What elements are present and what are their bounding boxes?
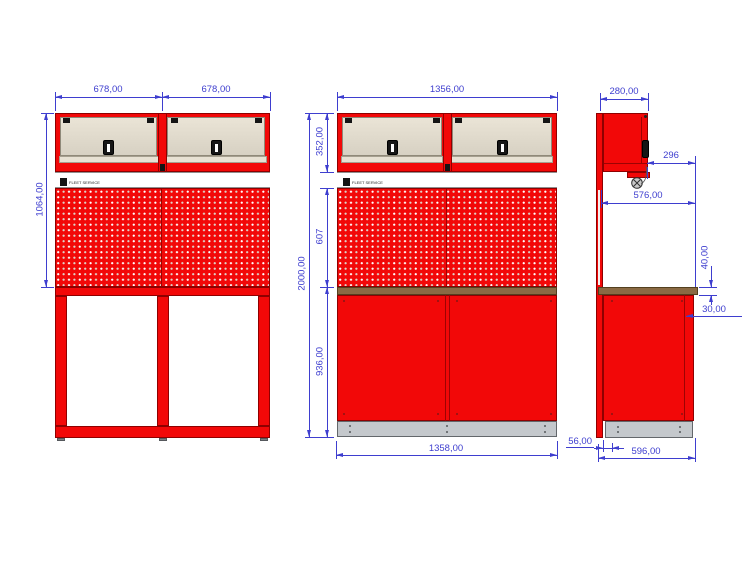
hinge-icon [455,118,462,123]
arrow-icon [647,161,654,165]
leveling-foot [260,438,268,441]
brand-logo-text: FLEET SERVICE [352,181,383,185]
door-handle-icon [211,140,222,155]
screw-dot [679,426,681,428]
screw-dot [343,413,345,415]
screw-dot [349,425,351,427]
handle-slot [107,144,110,152]
screw-dot [679,431,681,433]
screw-dot [681,413,683,415]
pegboard-panel [337,188,557,287]
arrow-icon [688,456,695,460]
arrow-icon [550,453,557,457]
dim-label-40: 40,00 [700,218,711,298]
screw-dot [343,300,345,302]
screw-dot [446,425,448,427]
base-plinth [337,421,557,437]
base-door-edge [449,295,450,421]
dim-label-280: 280,00 [584,86,664,97]
dim-label-1356: 1356,00 [407,84,487,95]
frame-top-beam [55,287,270,296]
dim-label-678-right: 678,00 [176,84,256,95]
screw-dot [456,300,458,302]
extension-line [601,190,602,208]
hinge-icon [433,118,440,123]
screw-dot [681,300,683,302]
dim-label-352: 352,00 [315,102,326,182]
screw-dot [349,431,351,433]
leader-underline [566,447,594,448]
dim-label-30: 30,00 [674,304,750,315]
arrow-icon [307,113,311,120]
worktop [337,287,557,295]
screw-dot [617,431,619,433]
hinge-icon [345,118,352,123]
extension-line [695,438,696,462]
arrow-icon [44,113,48,120]
dim-label-1358: 1358,00 [406,443,486,454]
cabinet-sill-left [341,156,443,163]
cabinet-sill-right [451,156,553,163]
screw-dot [544,425,546,427]
handle-slot [391,144,394,152]
leader-line [686,316,742,317]
dimension-line [598,458,695,459]
screw-dot [611,413,613,415]
dimension-line [309,113,310,437]
extension-line [557,92,558,111]
frame-bottom-rail [55,426,270,438]
arrow-icon [598,456,605,460]
hinge-icon [171,118,178,123]
frame-leg-left [55,296,67,426]
dimension-line [327,287,328,437]
base-cabinet [337,295,557,421]
arrow-icon [55,95,62,99]
center-latch-icon [445,164,450,171]
arrow-icon [325,287,329,294]
screw-dot [437,300,439,302]
extension-line [647,167,648,179]
dim-label-607: 607 [315,197,326,277]
extension-line [695,156,696,287]
dimension-line [327,188,328,287]
handle-slot [215,144,218,152]
arrow-icon [307,430,311,437]
dim-label-596: 596,00 [606,446,686,457]
brand-logo-icon [343,178,350,186]
dim-label-56: 56,00 [546,436,592,447]
arrow-icon [162,95,169,99]
dimension-line [336,455,557,456]
dimension-line [327,113,328,172]
pegboard-edge [598,190,600,285]
arrow-icon [337,95,344,99]
screw-dot [611,300,613,302]
arrow-icon [550,95,557,99]
frame-leg-center [157,296,169,426]
arrow-icon [601,201,608,205]
arrow-icon [688,161,695,165]
arrow-icon [641,97,648,101]
screw-dot [617,426,619,428]
hinge-icon [543,118,550,123]
arrow-icon [263,95,270,99]
extension-line [603,440,604,452]
dim-label-1064: 1064,00 [35,160,46,240]
screw-dot [550,413,552,415]
screw-dot [550,300,552,302]
center-latch-icon [160,164,165,171]
pegboard-divider [161,189,162,286]
arrow-icon [336,453,343,457]
hinge-icon [255,118,262,123]
brand-logo-text: FLEET SERVICE [69,181,100,185]
extension-line [305,437,334,438]
screw-dot [544,431,546,433]
hinge-icon [147,118,154,123]
handle-slot [501,144,504,152]
screw-dot [456,413,458,415]
arrow-icon [600,97,607,101]
dimension-line [46,113,47,287]
dim-label-576: 576,00 [608,190,688,201]
hinge-icon [63,118,70,123]
cabinet-sill-right [166,156,267,163]
dim-label-2000: 2000,00 [297,234,308,314]
door-handle-icon [387,140,398,155]
hinge-dot [644,115,647,118]
dimension-line [337,97,557,98]
leveling-foot [57,438,65,441]
door-handle-icon [497,140,508,155]
worktop-profile [598,287,698,295]
base-door-edge [445,295,446,421]
brand-logo-icon [60,178,67,186]
leveling-foot [159,438,167,441]
base-plinth-profile [605,421,693,438]
pegboard-panel [55,188,270,287]
arrow-icon [325,430,329,437]
arrow-icon [325,280,329,287]
technical-drawing-canvas: FLEET SERVICE 678,00 678,00 1064,00 [0,0,750,579]
arrow-icon [44,280,48,287]
extension-line [41,287,54,288]
dim-label-296: 296 [631,150,711,161]
arrow-icon [155,95,162,99]
cabinet-sill-left [59,156,159,163]
leader-curve [638,162,650,186]
extension-line [270,92,271,111]
arrow-icon [325,188,329,195]
arrow-icon [688,201,695,205]
dim-label-936: 936,00 [315,322,326,402]
dimension-line [601,203,695,204]
dim-label-678-left: 678,00 [68,84,148,95]
frame-leg-right [258,296,270,426]
screw-dot [446,431,448,433]
pegboard-divider [446,189,447,286]
screw-dot [437,413,439,415]
door-handle-icon [103,140,114,155]
